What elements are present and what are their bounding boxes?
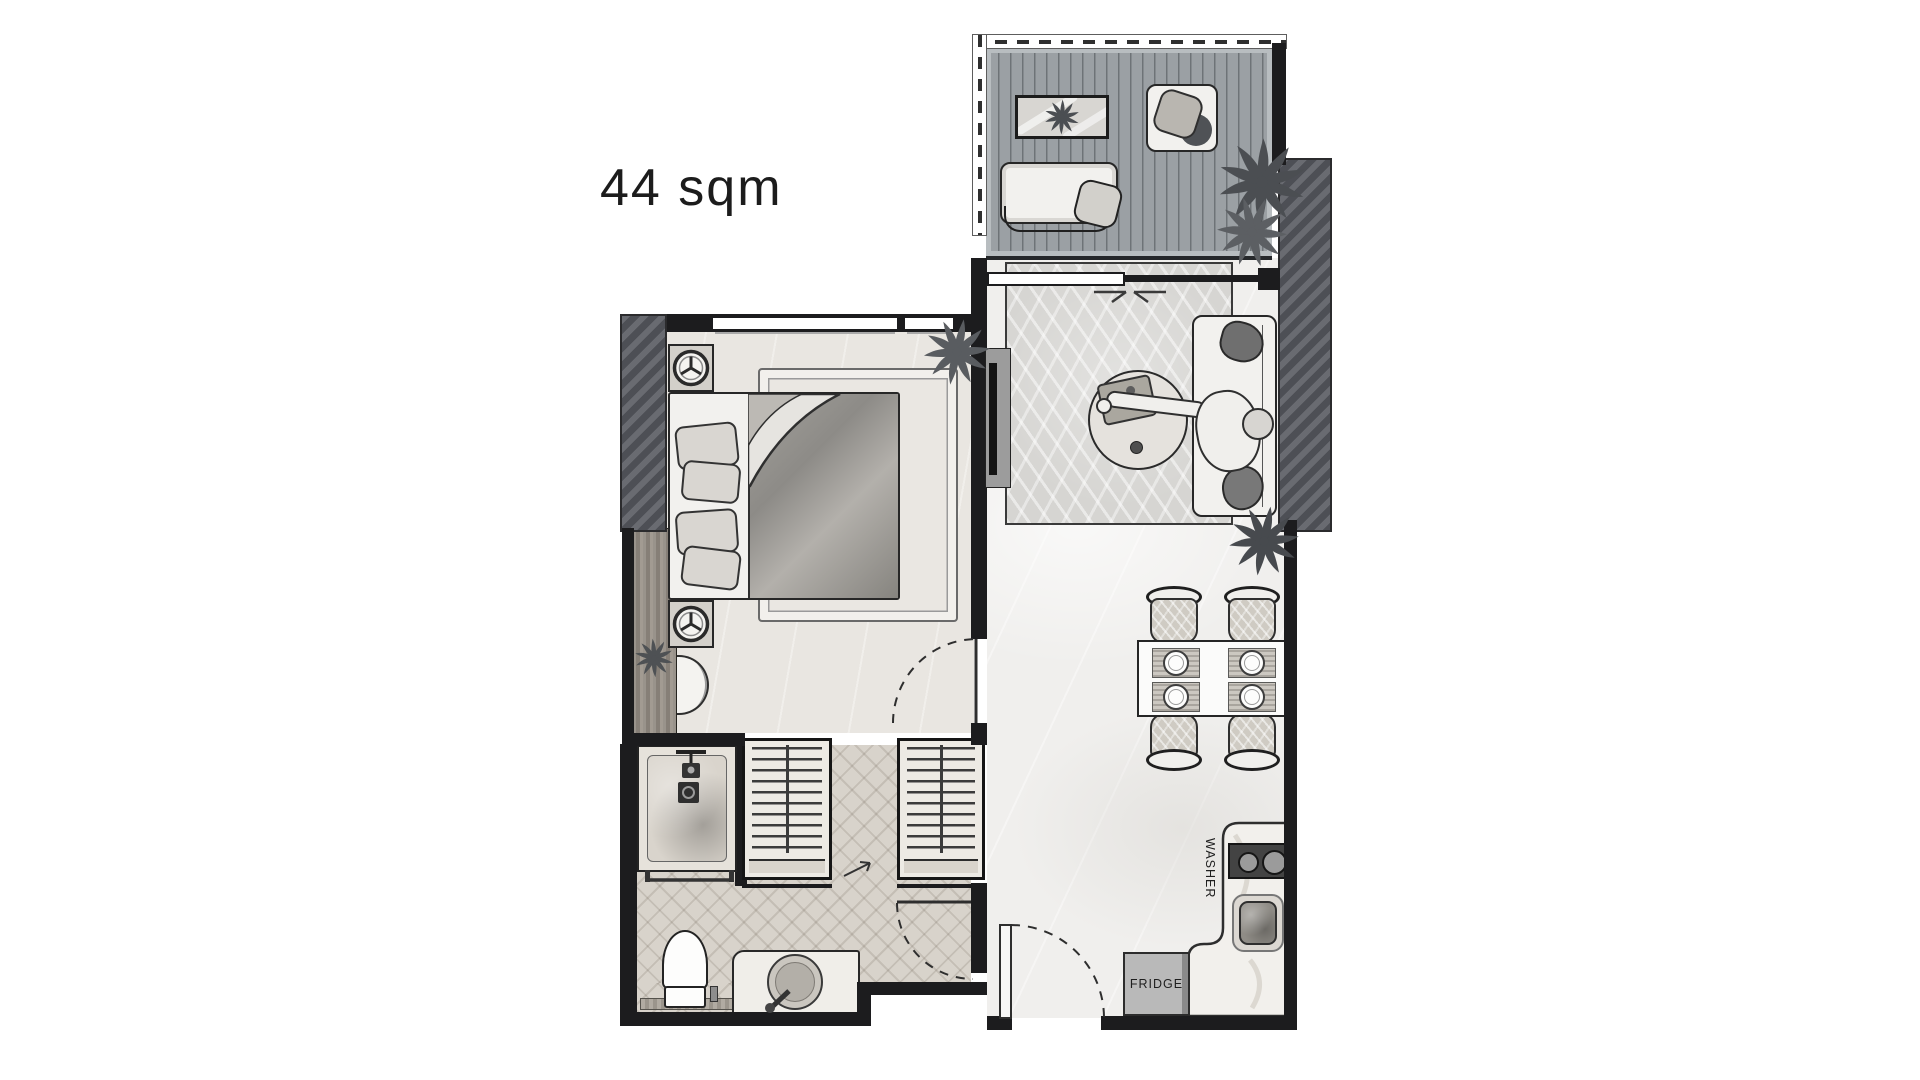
- fridge: FRIDGE: [1123, 952, 1190, 1016]
- table-cup: [1130, 441, 1143, 454]
- wardrobe-sill: [904, 859, 978, 873]
- shower: [637, 745, 737, 872]
- nightstand-top: [668, 344, 714, 392]
- wall-left-bath: [620, 744, 637, 1026]
- person-head: [1242, 408, 1274, 440]
- dining-chair-seat: [1150, 598, 1198, 644]
- sliding-door-end-block: [1258, 268, 1280, 290]
- wall-left-mid: [622, 528, 634, 744]
- balcony-railing-left: [972, 34, 987, 236]
- area-label: 44 sqm: [600, 158, 783, 218]
- wardrobe-left: [742, 738, 832, 880]
- duvet-fold-icon: [748, 394, 858, 494]
- toilet-tank: [664, 986, 706, 1008]
- wardrobe-left-base: [742, 884, 832, 888]
- balcony-railing-top: [972, 34, 1287, 49]
- plate: [1163, 684, 1189, 710]
- washer-label: WASHER: [1203, 838, 1217, 898]
- hanging-rail: [786, 745, 789, 853]
- window-mullion: [897, 314, 905, 332]
- bedroom-topwall-left: [667, 314, 713, 332]
- wall-bath-bottom: [857, 982, 987, 995]
- wall-entrance-stub: [987, 1016, 1012, 1030]
- sink-bowl: [1239, 901, 1277, 945]
- wardrobe-sill: [749, 859, 825, 873]
- person-hand: [1096, 398, 1112, 414]
- fridge-label: FRIDGE: [1130, 977, 1183, 991]
- dining-chair-seat: [1228, 598, 1276, 644]
- wardrobe-right: [897, 738, 985, 880]
- wall-bottom-left: [620, 1012, 871, 1026]
- vanity-basin: [767, 954, 823, 1010]
- bedroom-window: [713, 314, 897, 332]
- tv-unit: [985, 348, 1011, 488]
- fridge-hinge-strip: [1182, 954, 1188, 1014]
- exterior-wall-right: [1278, 158, 1332, 532]
- washer-hob: [1228, 843, 1286, 879]
- plate: [1239, 684, 1265, 710]
- dining-table: [1137, 640, 1292, 717]
- hanging-rail: [940, 745, 943, 853]
- plate: [1163, 650, 1189, 676]
- kitchen-sink: [1232, 894, 1284, 952]
- nightstand-bottom: [668, 600, 714, 648]
- wall-corridor-living: [971, 883, 987, 973]
- basin-bowl: [775, 962, 815, 1002]
- wall-bottom-right: [1101, 1016, 1297, 1030]
- dining-chair: [1146, 749, 1202, 771]
- toilet-flush-button: [710, 986, 718, 1002]
- wall-bedroom-bath: [622, 733, 745, 746]
- plate: [1239, 650, 1265, 676]
- floor-plan: WASHER FRIDGE: [0, 0, 1920, 1080]
- sliding-door-fixed-panel: [987, 272, 1125, 286]
- wall-right-lower: [1284, 520, 1297, 1030]
- dining-chair: [1224, 749, 1280, 771]
- exterior-wall-left: [620, 314, 667, 532]
- bedroom-window: [905, 314, 953, 332]
- toilet: [662, 930, 708, 990]
- bed-pillow: [680, 545, 742, 592]
- sliding-door-panel: [1125, 275, 1262, 282]
- shower-tray: [647, 755, 727, 862]
- deck-table: [1015, 95, 1109, 139]
- hob-knob: [1238, 852, 1259, 873]
- bed-pillow: [680, 460, 741, 505]
- balcony-wall-right: [1272, 43, 1286, 165]
- wall-bedroom-living-stub: [971, 723, 987, 745]
- tv-screen: [989, 363, 997, 475]
